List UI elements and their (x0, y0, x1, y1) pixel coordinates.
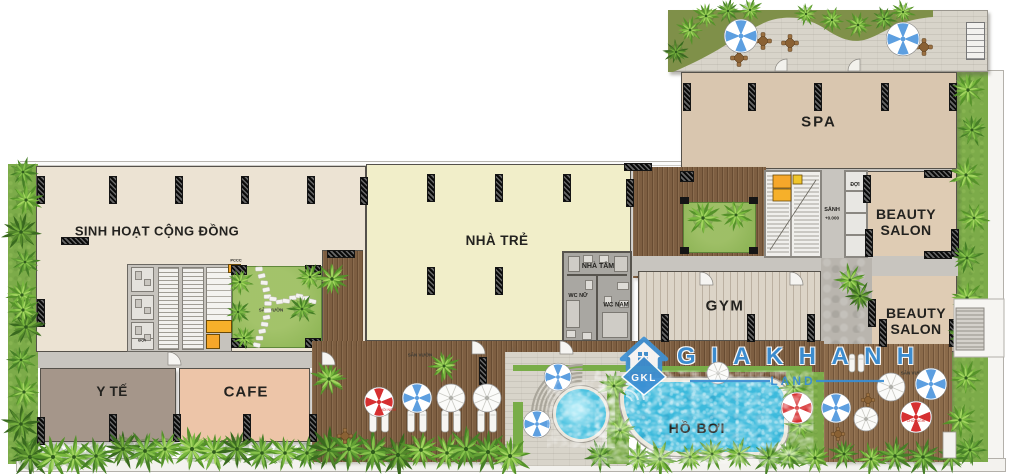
svg-text:CHÒI NGHỈ: CHÒI NGHỈ (378, 407, 397, 412)
svg-text:GKL: GKL (631, 373, 657, 384)
svg-text:CHÒI NGHỈ: CHÒI NGHỈ (907, 418, 926, 423)
svg-text:LAND: LAND (770, 374, 815, 388)
